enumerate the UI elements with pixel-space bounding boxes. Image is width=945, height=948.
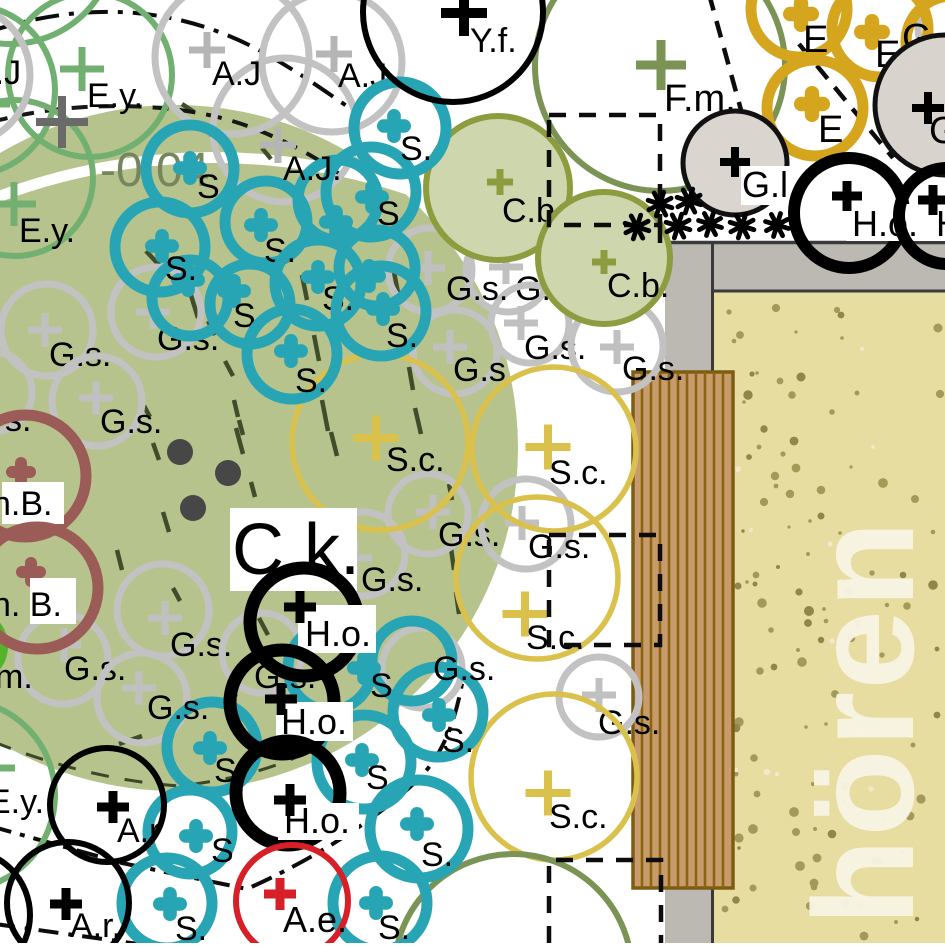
svg-text:n.B.: n.B.	[0, 485, 52, 523]
svg-text:G.s.: G.s.	[446, 270, 508, 308]
svg-text:S.: S.	[175, 910, 207, 943]
svg-text:G.s.: G.s.	[147, 689, 209, 727]
svg-text:S.: S.	[386, 317, 418, 355]
svg-text:G.l.: G.l.	[742, 164, 798, 205]
svg-text:S.: S.	[442, 722, 474, 760]
svg-text:E.y.: E.y.	[0, 783, 44, 821]
svg-text:S.c.: S.c.	[386, 441, 445, 479]
svg-text:G.s.: G.s.	[64, 650, 126, 688]
svg-text:S: S	[197, 168, 220, 206]
svg-text:A.J: A.J	[212, 55, 261, 93]
svg-text:G.s.: G.s.	[361, 561, 423, 599]
svg-text:hören: hören	[785, 519, 944, 926]
svg-text:A.J: A.J	[0, 54, 21, 92]
svg-text:E: E	[818, 109, 843, 151]
svg-text:m.: m.	[0, 658, 33, 696]
svg-text:S.: S.	[165, 250, 197, 288]
svg-text:A.r: A.r	[117, 812, 160, 850]
svg-text:G: G	[929, 110, 945, 152]
svg-text:S.c.: S.c.	[549, 798, 608, 836]
svg-text:S.c.: S.c.	[549, 454, 608, 492]
svg-text:G.s.: G.s.	[433, 650, 495, 688]
svg-text:G.s.: G.s.	[622, 350, 684, 388]
svg-text:G.s.: G.s.	[100, 403, 162, 441]
svg-text:S.: S.	[295, 362, 327, 400]
svg-text:Y.f.: Y.f.	[470, 22, 517, 60]
svg-text:A.r.: A.r.	[70, 907, 121, 943]
svg-text:S: S	[211, 832, 234, 870]
svg-text:E.y.: E.y.	[19, 212, 75, 250]
svg-text:S.: S.	[400, 130, 432, 168]
svg-text:A.e.: A.e.	[283, 899, 347, 940]
svg-text:S.: S.	[421, 836, 453, 874]
svg-text:C.b.: C.b.	[607, 267, 669, 305]
svg-text:S: S	[377, 195, 400, 233]
svg-text:G.s.: G.s.	[254, 658, 316, 696]
svg-text:H.o.: H.o.	[305, 613, 371, 654]
svg-text:E.y.: E.y.	[87, 77, 143, 115]
svg-text:S.c.: S.c.	[526, 619, 585, 657]
svg-text:S.: S.	[378, 909, 410, 943]
svg-text:n. B.: n. B.	[0, 586, 62, 624]
svg-text:A.J.: A.J.	[283, 150, 342, 188]
